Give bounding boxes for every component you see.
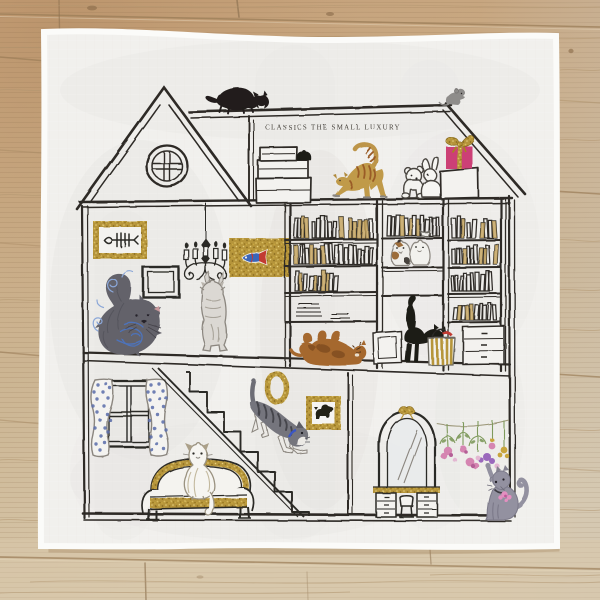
svg-text:CLASSICS THE SMALL LUXURY: CLASSICS THE SMALL LUXURY — [265, 125, 401, 132]
